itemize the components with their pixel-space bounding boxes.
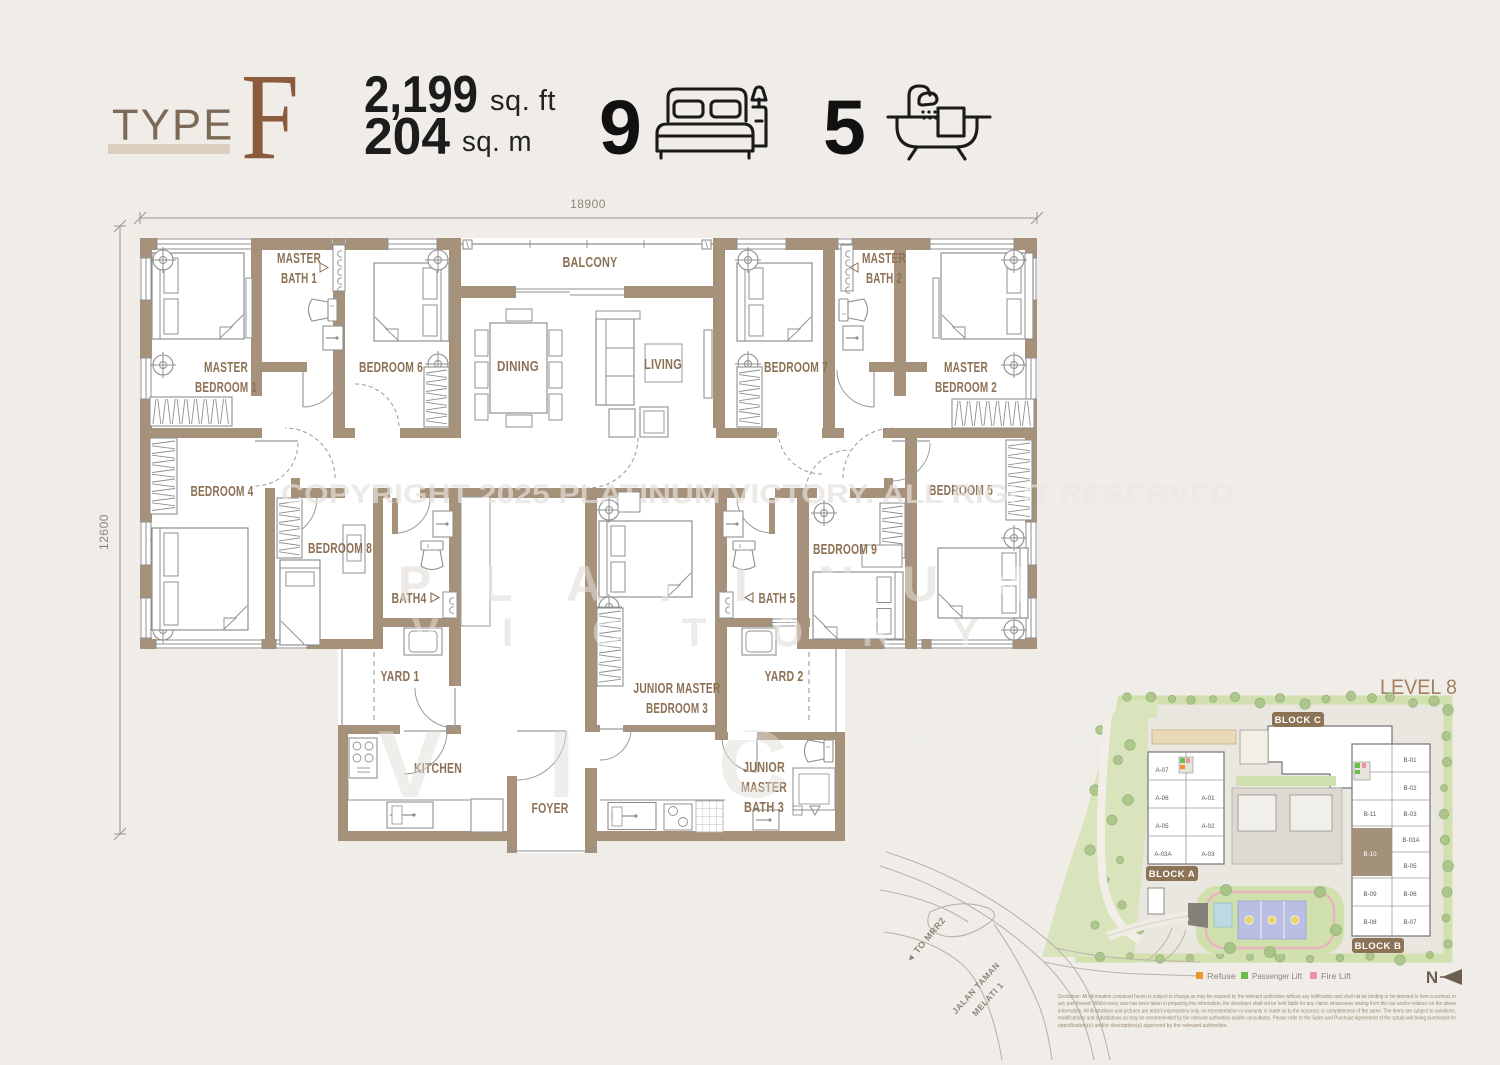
svg-text:YARD 1: YARD 1 — [381, 668, 420, 685]
svg-text:A-07: A-07 — [1155, 767, 1169, 774]
svg-text:MASTER: MASTER — [944, 359, 988, 376]
svg-text:I: I — [502, 611, 513, 655]
svg-text:A-05: A-05 — [1155, 823, 1169, 830]
svg-text:BATH 1: BATH 1 — [281, 270, 317, 287]
svg-text:BEDROOM 7: BEDROOM 7 — [764, 359, 828, 376]
svg-text:L: L — [482, 556, 513, 612]
svg-text:MASTER: MASTER — [277, 250, 321, 267]
svg-text:C: C — [592, 611, 621, 655]
svg-text:DINING: DINING — [497, 358, 539, 375]
svg-text:COPYRIGHT 2025 PLATINUM VICTOR: COPYRIGHT 2025 PLATINUM VICTORY. ALL RIG… — [281, 479, 1243, 509]
svg-text:BLOCK A: BLOCK A — [1149, 869, 1195, 880]
svg-text:T: T — [682, 611, 706, 655]
svg-text:BLOCK B: BLOCK B — [1355, 941, 1402, 952]
svg-text:A-06: A-06 — [1155, 795, 1169, 802]
svg-text:A: A — [566, 556, 602, 612]
svg-text:B-02: B-02 — [1403, 785, 1417, 792]
svg-text:12600: 12600 — [97, 514, 111, 550]
svg-text:BEDROOM 2: BEDROOM 2 — [935, 379, 997, 396]
svg-text:R: R — [862, 611, 891, 655]
svg-text:modifications and substitution: modifications and substitutions as may b… — [1058, 1016, 1456, 1022]
svg-text:Fire Lift: Fire Lift — [1321, 971, 1352, 981]
svg-text:A-03: A-03 — [1201, 851, 1215, 858]
svg-text:Passenger Lift: Passenger Lift — [1252, 971, 1303, 981]
svg-text:BATH 2: BATH 2 — [866, 270, 902, 287]
svg-text:9: 9 — [599, 85, 642, 171]
svg-text:B-03: B-03 — [1403, 811, 1417, 818]
svg-text:MASTER: MASTER — [862, 250, 906, 267]
svg-text:A-01: A-01 — [1201, 795, 1215, 802]
svg-text:TYPE: TYPE — [112, 102, 234, 150]
svg-text:N: N — [818, 556, 854, 612]
svg-text:BEDROOM 8: BEDROOM 8 — [308, 540, 372, 557]
svg-text:5: 5 — [823, 85, 866, 171]
svg-text:I: I — [734, 556, 748, 612]
svg-text:MASTER: MASTER — [204, 359, 248, 376]
svg-text:B-10: B-10 — [1363, 851, 1377, 858]
svg-text:T: T — [650, 556, 681, 612]
svg-text:B-03A: B-03A — [1402, 837, 1420, 844]
svg-text:Refuse: Refuse — [1207, 971, 1236, 981]
svg-text:B-08: B-08 — [1363, 919, 1377, 926]
svg-text:A-03A: A-03A — [1154, 851, 1172, 858]
svg-text:any part thereof. Whilst every: any part thereof. Whilst every care has … — [1058, 1001, 1456, 1007]
svg-text:specification(s) and/or descri: specification(s) and/or description(s) a… — [1058, 1023, 1228, 1029]
svg-text:B-06: B-06 — [1403, 891, 1417, 898]
svg-text:B-11: B-11 — [1364, 811, 1377, 818]
svg-text:information. All illustrations: information. All illustrations and pictu… — [1058, 1008, 1456, 1014]
svg-text:V: V — [412, 611, 439, 655]
svg-text:BATH 5: BATH 5 — [759, 590, 796, 607]
svg-text:N: N — [1426, 968, 1438, 987]
svg-text:V: V — [378, 711, 442, 818]
svg-text:U: U — [902, 556, 938, 612]
svg-text:BALCONY: BALCONY — [563, 254, 618, 271]
svg-text:BEDROOM 4: BEDROOM 4 — [191, 483, 254, 500]
svg-text:A-02: A-02 — [1201, 823, 1215, 830]
svg-text:LIVING: LIVING — [644, 356, 682, 373]
svg-text:I: I — [548, 711, 575, 818]
svg-text:P: P — [398, 556, 431, 612]
svg-text:C: C — [718, 711, 787, 818]
svg-text:O: O — [772, 611, 803, 655]
svg-text:M: M — [986, 556, 1028, 612]
svg-text:YARD 2: YARD 2 — [765, 668, 804, 685]
svg-text:F: F — [241, 48, 299, 185]
svg-text:T: T — [888, 711, 947, 818]
svg-text:sq. ft: sq. ft — [490, 85, 556, 117]
svg-text:sq. m: sq. m — [462, 126, 532, 158]
svg-text:JUNIOR MASTER: JUNIOR MASTER — [634, 680, 721, 697]
svg-text:204: 204 — [364, 108, 450, 166]
svg-text:B-01: B-01 — [1403, 757, 1417, 764]
svg-text:Disclaimer: All information co: Disclaimer: All information contained he… — [1058, 994, 1456, 1000]
svg-text:18900: 18900 — [570, 197, 606, 211]
svg-text:Y: Y — [952, 611, 979, 655]
svg-text:BEDROOM 6: BEDROOM 6 — [359, 359, 423, 376]
svg-text:B-09: B-09 — [1363, 891, 1377, 898]
svg-text:B-05: B-05 — [1403, 863, 1417, 870]
svg-text:BEDROOM 1: BEDROOM 1 — [195, 379, 257, 396]
svg-text:BEDROOM 3: BEDROOM 3 — [646, 700, 708, 717]
svg-text:B-07: B-07 — [1403, 919, 1417, 926]
svg-text:BLOCK C: BLOCK C — [1275, 715, 1322, 726]
